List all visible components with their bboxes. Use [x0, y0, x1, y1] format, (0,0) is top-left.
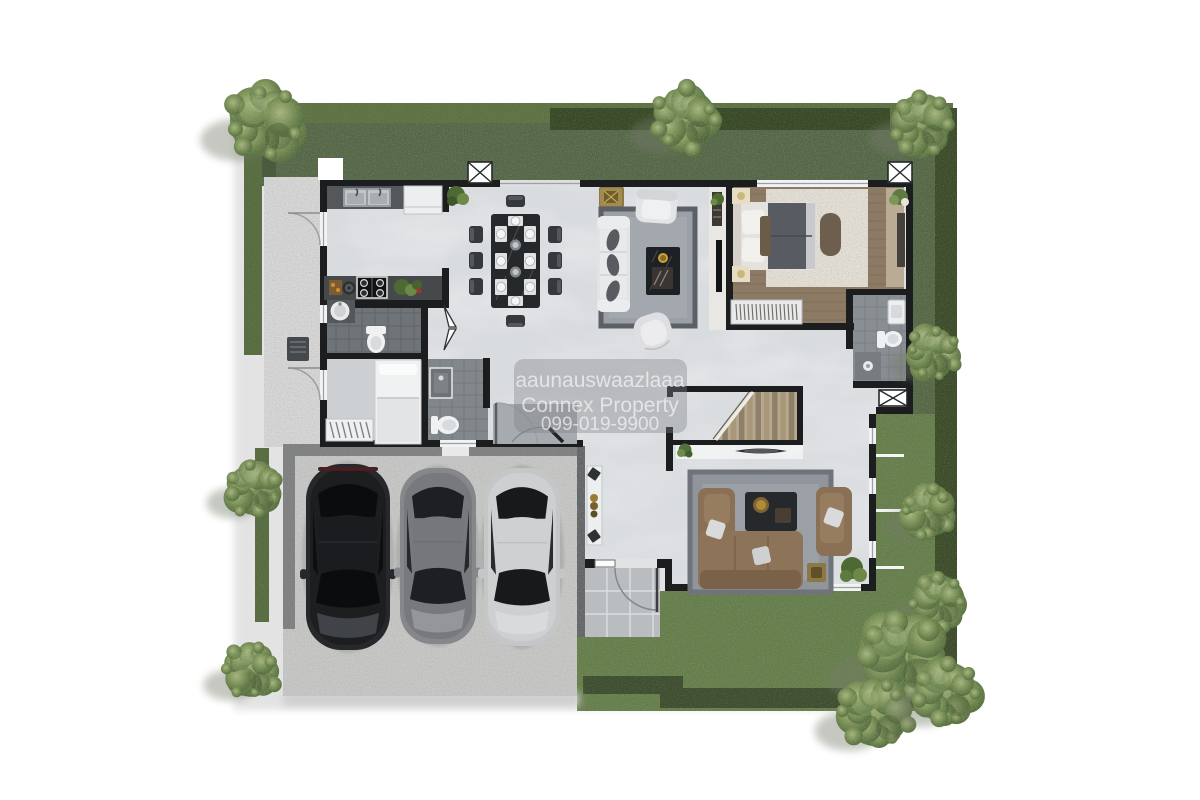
- svg-text:099-019-9900: 099-019-9900: [541, 414, 659, 435]
- svg-text:aaunauswaazlaaa: aaunauswaazlaaa: [515, 369, 685, 392]
